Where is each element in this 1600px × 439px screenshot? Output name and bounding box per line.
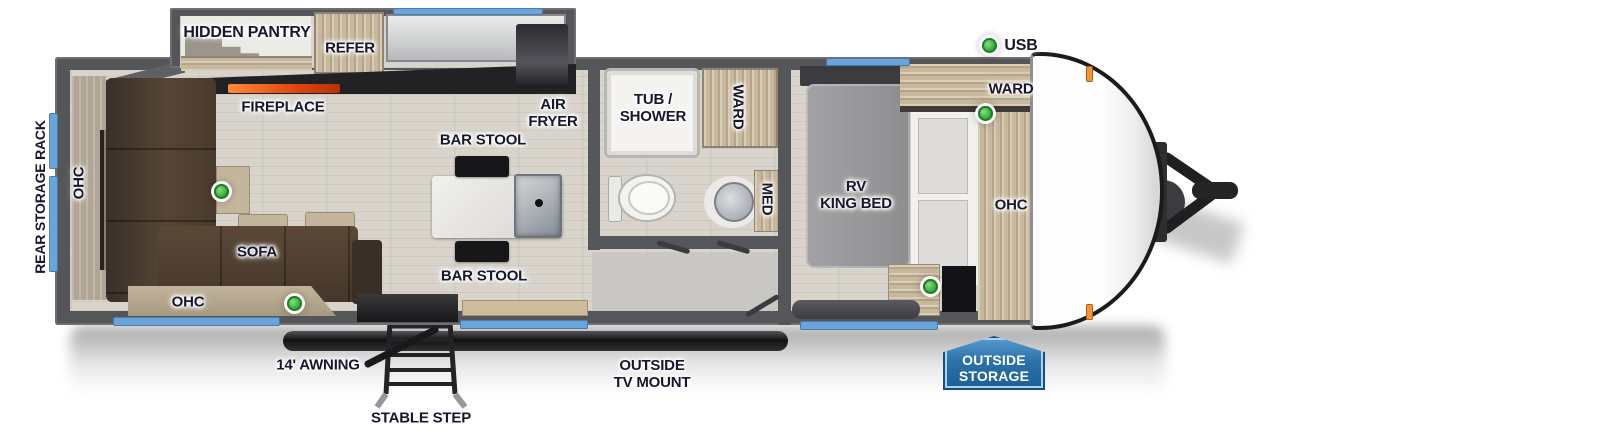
bedroom-right-cabinet [978,110,1036,320]
fireplace-strip [228,84,340,93]
marker-light-top [1086,66,1093,82]
window-bedroom-top [826,58,910,66]
fireplace-label: FIREPLACE [241,100,324,117]
ohc-bottom-cabinet [128,286,336,316]
usb-dot-living [214,184,229,199]
ward-bath-label: WARD [729,84,746,129]
usb-legend-label: USB [1004,37,1037,55]
awning-label: 14' AWNING [276,358,360,375]
bar-stool-top-label: BAR STOOL [440,133,526,150]
usb-dot-bedroom-head [978,106,993,121]
air-fryer-appliance [516,24,568,88]
marker-light-bottom [1086,304,1093,320]
air-fryer-label: AIR FRYER [528,97,577,131]
sofa-label: SOFA [237,245,277,262]
bath-wall-left [588,64,600,250]
rear-storage-rack-label: REAR STORAGE RACK [33,120,49,273]
rv-king-bed-label: RV KING BED [820,179,892,213]
bottom-wall-bench [462,300,588,316]
ohc-bottom-label: OHC [172,295,205,312]
window-bottom-mid [460,320,588,329]
entry-hall-mat [592,252,778,311]
bedroom-tv [942,266,976,312]
ohc-left-label: OHC [72,167,89,200]
window-bottom-right [800,321,938,330]
sink-faucet [535,199,543,207]
usb-legend-dot [982,38,997,53]
outside-tv-mount-label: OUTSIDE TV MOUNT [614,358,691,392]
tub-shower-label: TUB / SHOWER [620,92,686,126]
stable-step-label: STABLE STEP [371,411,471,428]
bedroom-wall [778,64,791,325]
bed-bolster-bench [792,300,920,319]
bar-stool-1 [455,156,509,177]
ohc-bedroom-label: OHC [995,198,1028,215]
front-cap [1030,52,1164,330]
hidden-pantry-label: HIDDEN PANTRY [183,24,310,42]
pantry-shelf [181,56,312,71]
ward-bedroom-label: WARD [988,82,1033,99]
entry-platform [357,294,458,322]
bath-wall-bottom [588,236,790,249]
outside-storage-label: OUTSIDE STORAGE [959,352,1029,384]
window-rear-upper [49,113,58,169]
toilet-seat [628,181,670,215]
med-label: MED [758,183,775,216]
floorplan-canvas: OUTSIDE STORAGE REAR STORAGE RACK OHC HI… [0,0,1600,439]
window-bottom-left [113,317,280,326]
usb-dot-ohc [287,296,302,311]
window-slideout [393,8,543,15]
stable-step-ladder [360,318,472,414]
usb-dot-bedroom-foot [923,279,938,294]
bed-headboard [800,66,902,86]
bed-slide-panel-1 [918,118,968,194]
refer-label: REFER [325,41,375,58]
king-bed-mattress [806,84,910,268]
bar-stool-2 [455,241,509,262]
window-rear-lower [49,176,58,272]
bath-sink [714,182,754,222]
bar-stool-bottom-label: BAR STOOL [441,269,527,286]
awning-roller [283,331,788,351]
